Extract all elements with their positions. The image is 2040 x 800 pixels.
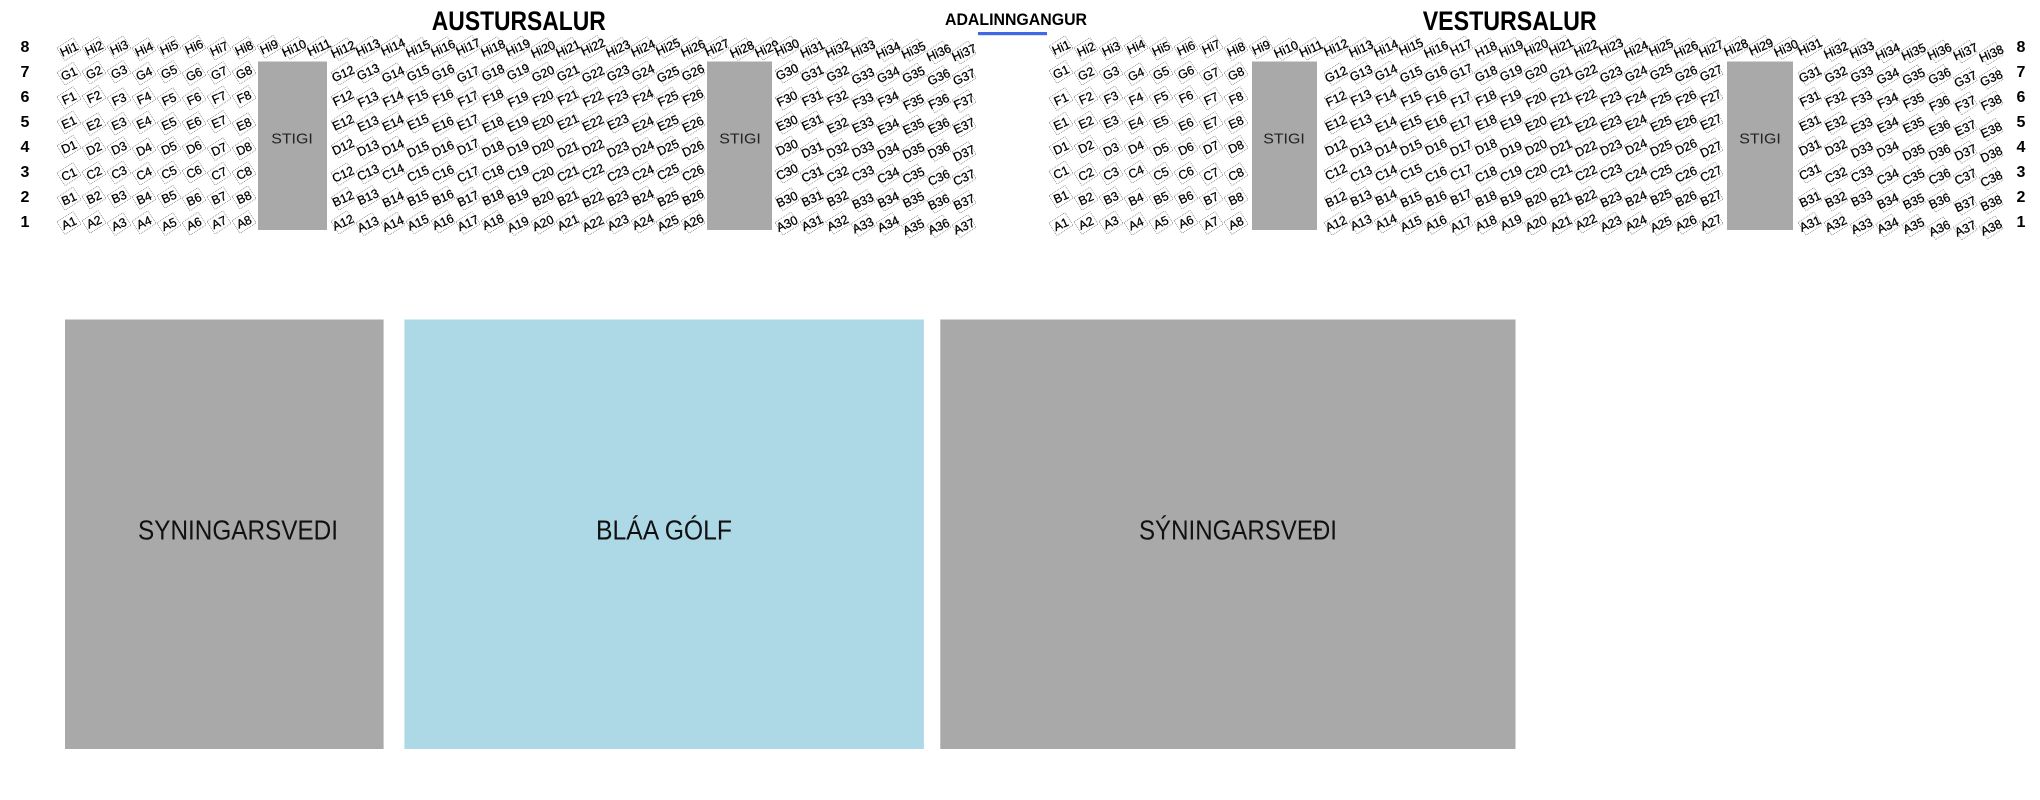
svg-text:7: 7 (2017, 64, 2026, 81)
svg-text:4: 4 (21, 139, 30, 156)
svg-text:8: 8 (21, 39, 30, 56)
svg-text:6: 6 (2017, 89, 2026, 106)
svg-text:2: 2 (21, 189, 30, 206)
svg-text:STIGI: STIGI (1739, 131, 1781, 148)
svg-text:8: 8 (2017, 39, 2026, 56)
svg-text:SÝNINGARSVEÐI: SÝNINGARSVEÐI (1139, 515, 1337, 546)
svg-text:4: 4 (2017, 139, 2026, 156)
svg-text:5: 5 (21, 114, 30, 131)
svg-text:3: 3 (2017, 164, 2026, 181)
svg-text:STIGI: STIGI (1263, 131, 1305, 148)
svg-text:VESTURSALUR: VESTURSALUR (1423, 6, 1597, 36)
svg-text:STIGI: STIGI (271, 131, 313, 148)
svg-text:BLÁA GÓLF: BLÁA GÓLF (596, 515, 732, 546)
svg-text:1: 1 (21, 214, 30, 231)
svg-text:5: 5 (2017, 114, 2026, 131)
svg-text:3: 3 (21, 164, 30, 181)
svg-text:SYNINGARSVEDI: SYNINGARSVEDI (138, 515, 338, 546)
svg-text:AUSTURSALUR: AUSTURSALUR (432, 6, 606, 36)
svg-text:2: 2 (2017, 189, 2026, 206)
svg-text:STIGI: STIGI (719, 131, 761, 148)
svg-text:ADALINNGANGUR: ADALINNGANGUR (945, 10, 1087, 29)
svg-text:7: 7 (21, 64, 30, 81)
svg-text:1: 1 (2017, 214, 2026, 231)
svg-text:6: 6 (21, 89, 30, 106)
